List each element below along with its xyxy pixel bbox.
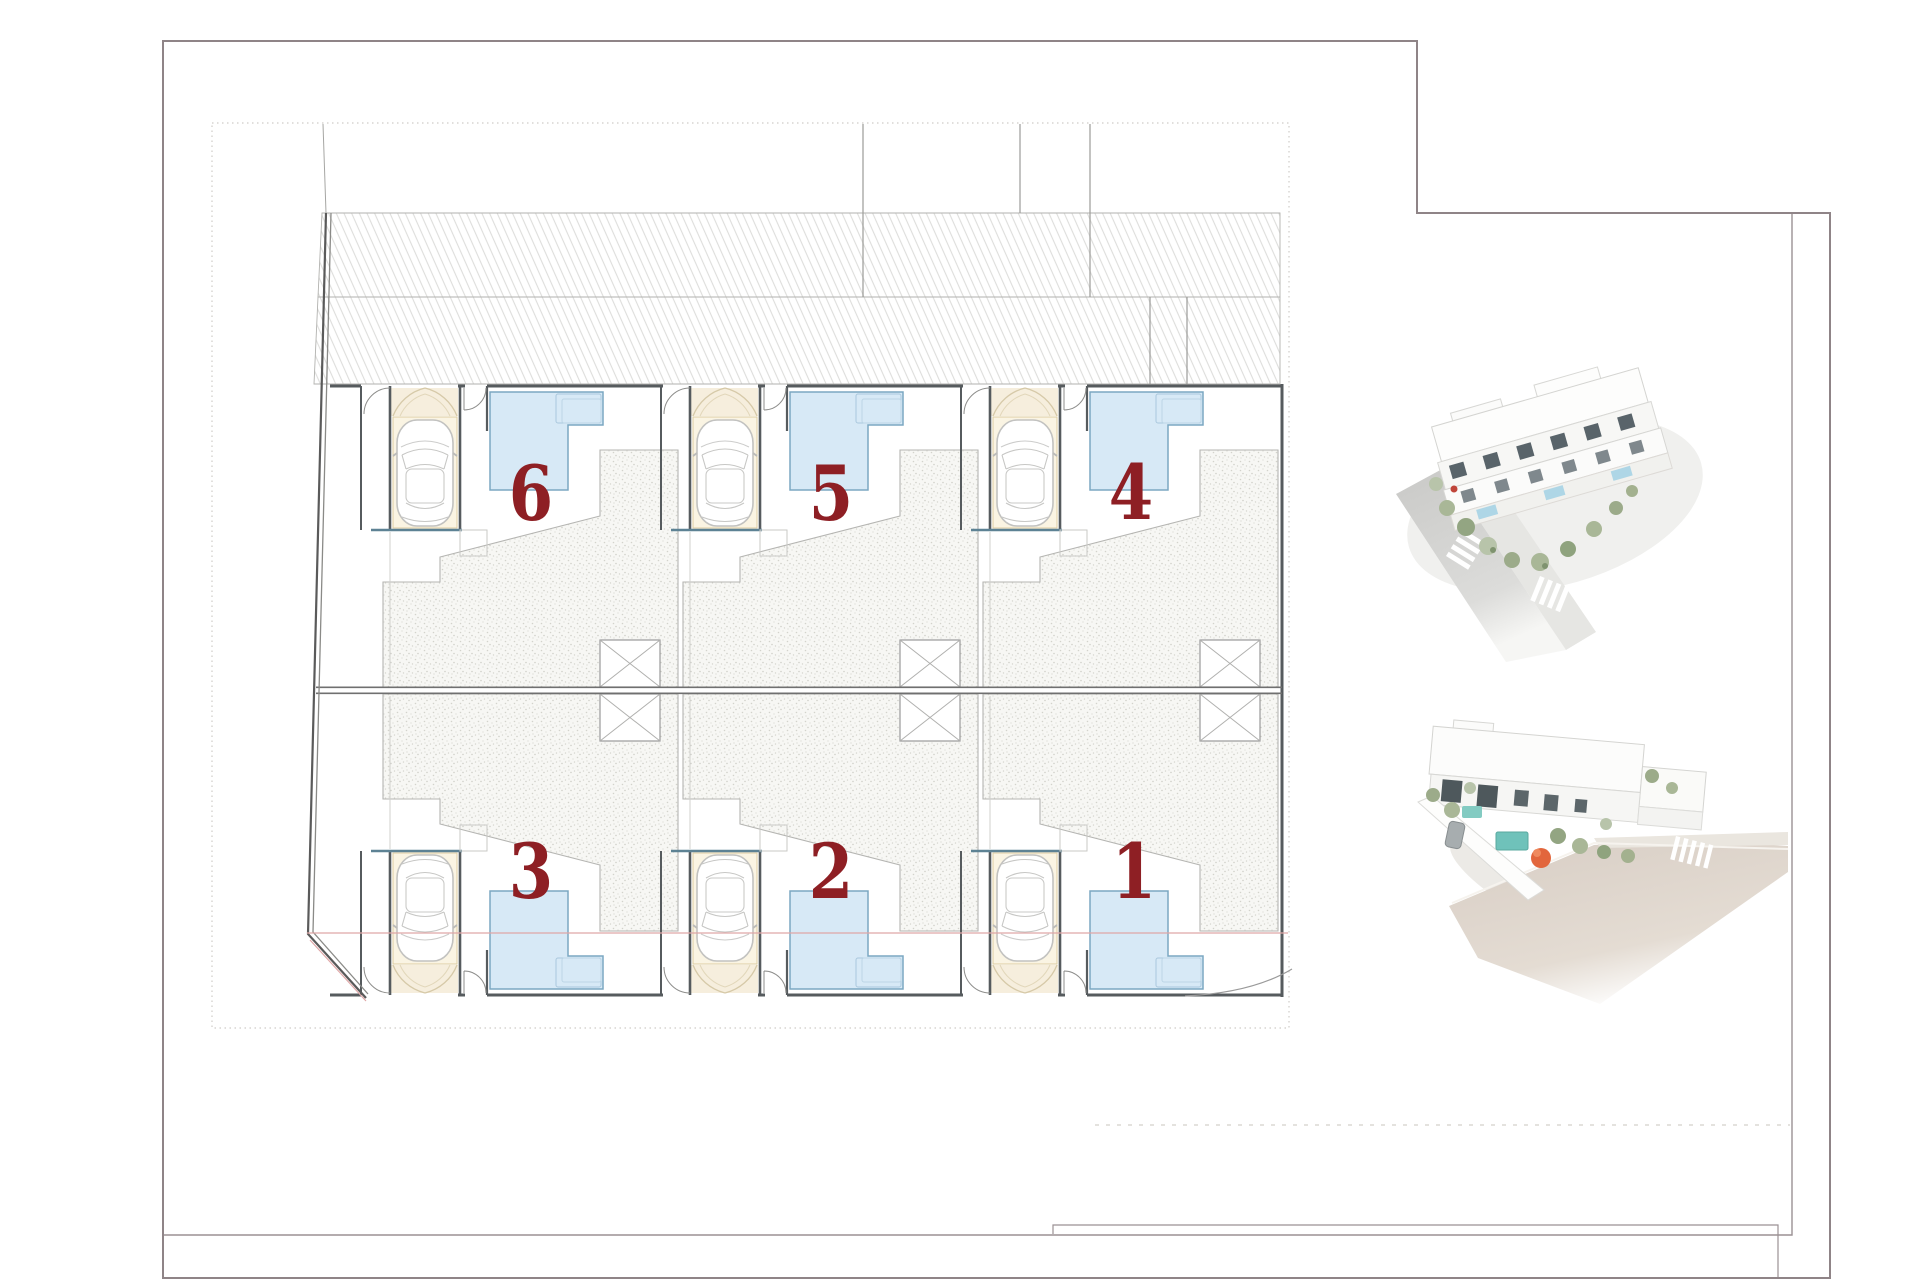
pool [1462,806,1482,818]
unit-1-number: 1 [1112,834,1156,910]
unit-2-plan [630,694,978,995]
render-top-aerial [1387,355,1723,662]
floorplan-page: 6 5 4 3 2 1 [0,0,1920,1280]
unit-6-plan [330,386,678,687]
unit-2-number: 2 [809,834,853,910]
unit-5-plan [630,386,978,687]
site-plan-drawing [0,0,1920,1280]
unit-1-plan [930,694,1278,995]
neighbour-parcels [314,124,1280,384]
unit-3-number: 3 [509,834,553,910]
red-accent [1451,486,1458,493]
unit-6-number: 6 [509,456,553,532]
unit-4-number: 4 [1109,455,1153,531]
unit-3-plan [330,694,678,995]
inner-frame-step [1053,1225,1778,1277]
render-bottom-aerial [1418,718,1788,1004]
unit-4-plan [930,386,1278,687]
pool [1496,832,1528,850]
unit-5-number: 5 [809,456,853,532]
